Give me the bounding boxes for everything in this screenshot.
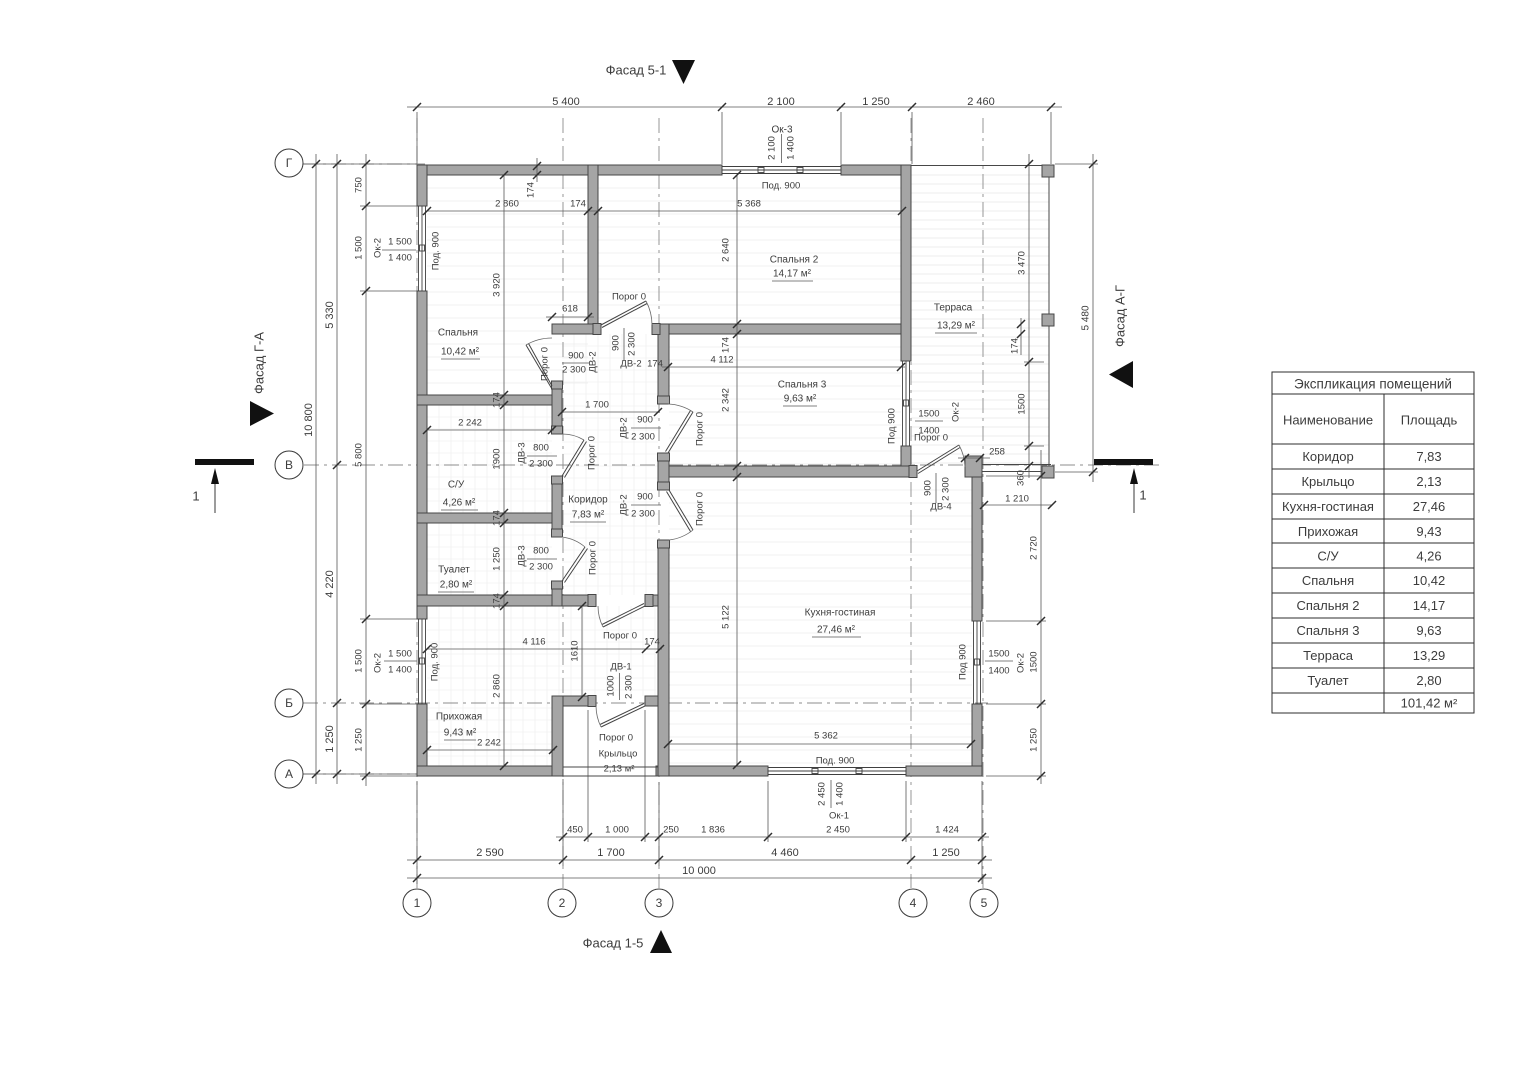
svg-text:Ок-3: Ок-3 [771,125,792,136]
svg-text:Крыльцо: Крыльцо [599,749,638,760]
svg-text:27,46 м²: 27,46 м² [817,625,856,636]
svg-text:800: 800 [533,443,549,454]
svg-text:258: 258 [989,447,1005,458]
svg-text:101,42 м²: 101,42 м² [1401,696,1458,711]
svg-text:Под. 900: Под. 900 [762,181,801,192]
svg-text:ДВ-2: ДВ-2 [588,351,599,372]
svg-text:900: 900 [637,415,653,426]
svg-text:Г: Г [286,156,293,170]
svg-text:4,26 м²: 4,26 м² [443,498,476,509]
svg-text:450: 450 [567,825,583,836]
svg-text:9,63: 9,63 [1416,623,1441,638]
svg-text:1400: 1400 [988,666,1009,677]
svg-text:2 300: 2 300 [941,477,952,501]
svg-text:2 300: 2 300 [562,365,586,376]
svg-text:Спальня 3: Спальня 3 [1296,623,1359,638]
svg-text:2 300: 2 300 [631,509,655,520]
svg-text:5: 5 [981,896,988,910]
svg-text:Порог 0: Порог 0 [588,541,599,575]
svg-text:Терраса: Терраса [1303,648,1354,663]
svg-text:2 100: 2 100 [767,96,795,108]
svg-text:ДВ-2: ДВ-2 [619,494,630,515]
svg-text:1 500: 1 500 [388,649,412,660]
svg-text:Порог 0: Порог 0 [914,433,948,444]
svg-text:Порог 0: Порог 0 [612,292,646,303]
svg-text:Кухня-гостиная: Кухня-гостиная [805,608,876,619]
svg-text:В: В [285,458,293,472]
svg-text:ДВ-3: ДВ-3 [517,545,528,566]
svg-text:4 112: 4 112 [710,355,733,366]
svg-text:2 860: 2 860 [492,674,503,698]
svg-text:5 800: 5 800 [354,443,365,467]
svg-text:14,17: 14,17 [1413,598,1446,613]
svg-text:900: 900 [637,492,653,503]
svg-text:1500: 1500 [988,649,1009,660]
svg-text:174: 174 [526,182,537,198]
svg-text:13,29: 13,29 [1413,648,1446,663]
svg-text:1500: 1500 [1029,651,1040,672]
svg-text:1 250: 1 250 [492,547,503,571]
svg-text:7,83 м²: 7,83 м² [572,510,605,521]
svg-text:Коридор: Коридор [1302,449,1353,464]
svg-text:С/У: С/У [1317,549,1339,564]
svg-text:1 250: 1 250 [932,847,960,859]
svg-text:2,13 м²: 2,13 м² [604,764,635,775]
svg-text:9,63 м²: 9,63 м² [784,394,817,405]
svg-text:Под. 900: Под. 900 [430,643,441,682]
svg-text:174: 174 [1010,338,1021,354]
svg-text:10,42 м²: 10,42 м² [441,347,480,358]
svg-text:2,80 м²: 2,80 м² [440,580,473,591]
svg-text:Крыльцо: Крыльцо [1301,474,1354,489]
svg-text:900: 900 [923,480,934,496]
svg-text:Под 900: Под 900 [958,644,969,680]
svg-text:2 640: 2 640 [721,238,732,262]
svg-text:1 250: 1 250 [324,725,336,753]
svg-text:ДВ-3: ДВ-3 [517,442,528,463]
svg-text:2 720: 2 720 [1029,536,1040,560]
svg-text:2: 2 [559,896,566,910]
svg-text:ДВ-4: ДВ-4 [930,502,951,513]
svg-text:Ок-2: Ок-2 [373,653,384,673]
svg-text:3 470: 3 470 [1017,251,1028,275]
svg-text:Спальня: Спальня [438,328,478,339]
svg-text:Кухня-гостиная: Кухня-гостиная [1282,499,1374,514]
svg-text:1 700: 1 700 [585,400,609,411]
svg-text:174: 174 [492,593,503,609]
svg-text:10 800: 10 800 [303,403,315,437]
svg-text:Спальня: Спальня [1302,573,1354,588]
svg-text:Фасад А-Г: Фасад А-Г [1113,285,1128,347]
svg-text:4 116: 4 116 [522,637,545,648]
svg-text:Порог 0: Порог 0 [540,347,551,381]
svg-text:Ок-2: Ок-2 [373,238,384,258]
svg-text:1500: 1500 [918,409,939,420]
svg-text:Фасад Г-А: Фасад Г-А [252,332,267,394]
svg-text:Под. 900: Под. 900 [431,232,442,271]
svg-text:2 300: 2 300 [631,432,655,443]
svg-text:250: 250 [663,825,679,836]
svg-text:5 122: 5 122 [721,605,732,629]
svg-text:1 700: 1 700 [597,847,625,859]
svg-text:Прихожая: Прихожая [436,712,482,723]
svg-text:Порог 0: Порог 0 [587,436,598,470]
svg-text:13,29 м²: 13,29 м² [937,321,976,332]
svg-text:1900: 1900 [492,448,503,469]
svg-text:Порог 0: Порог 0 [599,733,633,744]
svg-text:1500: 1500 [1017,393,1028,414]
svg-text:1: 1 [414,896,421,910]
svg-text:Терраса: Терраса [934,303,973,314]
svg-text:Спальня 3: Спальня 3 [778,380,827,391]
svg-text:Туалет: Туалет [1307,673,1348,688]
svg-text:2 450: 2 450 [817,782,828,806]
svg-text:1 424: 1 424 [935,825,959,836]
svg-text:2,13: 2,13 [1416,474,1441,489]
svg-text:360: 360 [1016,470,1027,486]
svg-text:800: 800 [533,546,549,557]
svg-text:1 000: 1 000 [605,825,629,836]
svg-text:2 860: 2 860 [495,199,519,210]
svg-text:5 480: 5 480 [1081,305,1092,330]
svg-text:174: 174 [492,392,503,408]
svg-text:Фасад 1-5: Фасад 1-5 [583,936,644,951]
svg-text:2 450: 2 450 [826,825,850,836]
svg-text:174: 174 [647,359,663,370]
svg-text:Туалет: Туалет [438,565,470,576]
svg-text:4 460: 4 460 [771,847,799,859]
svg-text:900: 900 [611,335,622,351]
svg-text:2 460: 2 460 [967,96,995,108]
svg-text:2 300: 2 300 [627,332,638,356]
svg-text:1 400: 1 400 [388,665,412,676]
svg-text:1 250: 1 250 [862,96,890,108]
svg-text:Б: Б [285,696,293,710]
svg-text:Под 900: Под 900 [887,408,898,444]
svg-text:1 250: 1 250 [1029,728,1040,752]
svg-text:1610: 1610 [570,640,581,661]
svg-text:174: 174 [492,510,503,526]
svg-text:174: 174 [570,199,586,210]
svg-text:10 000: 10 000 [682,865,716,877]
svg-text:2 300: 2 300 [529,459,553,470]
svg-text:7,83: 7,83 [1416,449,1441,464]
svg-text:4 220: 4 220 [324,570,336,598]
svg-text:4,26: 4,26 [1416,549,1441,564]
svg-text:2 300: 2 300 [624,675,635,699]
svg-text:5 368: 5 368 [737,199,761,210]
svg-text:5 400: 5 400 [552,96,580,108]
svg-text:2 100: 2 100 [767,136,778,160]
svg-text:1 500: 1 500 [388,237,412,248]
svg-text:10,42: 10,42 [1413,573,1446,588]
svg-text:1 836: 1 836 [701,825,725,836]
svg-text:1 400: 1 400 [835,782,846,806]
svg-text:5 362: 5 362 [814,731,838,742]
svg-text:1 400: 1 400 [786,136,797,160]
svg-text:1 400: 1 400 [388,253,412,264]
svg-text:1 250: 1 250 [354,728,365,752]
svg-text:2 300: 2 300 [529,562,553,573]
svg-text:Спальня 2: Спальня 2 [770,255,819,266]
svg-text:27,46: 27,46 [1413,499,1446,514]
svg-text:2,80: 2,80 [1416,673,1441,688]
svg-text:Коридор: Коридор [568,495,608,506]
svg-text:Прихожая: Прихожая [1298,524,1358,539]
svg-text:С/У: С/У [448,480,465,491]
svg-text:1: 1 [192,489,199,504]
svg-text:Порог 0: Порог 0 [695,492,706,526]
svg-text:Спальня 2: Спальня 2 [1296,598,1359,613]
svg-text:1 210: 1 210 [1005,494,1029,505]
svg-text:900: 900 [568,351,584,362]
svg-text:5 330: 5 330 [324,301,336,329]
svg-text:9,43 м²: 9,43 м² [444,728,477,739]
svg-text:Экспликация помещений: Экспликация помещений [1294,377,1452,392]
svg-text:1: 1 [1139,488,1146,503]
svg-text:ДВ-1: ДВ-1 [610,662,631,673]
svg-text:ДВ-2: ДВ-2 [619,417,630,438]
svg-text:Ок-2: Ок-2 [951,402,962,422]
svg-text:А: А [285,767,293,781]
svg-text:Под. 900: Под. 900 [816,756,855,767]
svg-text:174: 174 [721,337,732,353]
svg-text:1000: 1000 [606,675,617,696]
svg-text:ДВ-2: ДВ-2 [620,359,641,370]
svg-text:Порог 0: Порог 0 [603,631,637,642]
svg-text:2 590: 2 590 [476,847,504,859]
svg-text:2 242: 2 242 [458,418,482,429]
svg-text:9,43: 9,43 [1416,524,1441,539]
svg-text:174: 174 [644,637,660,648]
svg-text:Наименование: Наименование [1283,413,1373,428]
svg-text:2 242: 2 242 [477,738,501,749]
svg-text:3 920: 3 920 [492,273,503,297]
svg-text:1 500: 1 500 [354,649,365,673]
svg-text:Фасад 5-1: Фасад 5-1 [606,63,667,78]
svg-text:14,17 м²: 14,17 м² [773,269,812,280]
svg-text:618: 618 [562,304,578,315]
svg-text:Ок-2: Ок-2 [1016,653,1027,673]
svg-text:Порог 0: Порог 0 [695,412,706,446]
svg-text:4: 4 [910,896,917,910]
svg-text:Ок-1: Ок-1 [829,811,849,822]
svg-text:Площадь: Площадь [1401,413,1458,428]
svg-text:3: 3 [656,896,663,910]
svg-text:1 500: 1 500 [354,236,365,260]
svg-text:2 342: 2 342 [721,388,732,412]
svg-text:750: 750 [354,177,365,193]
